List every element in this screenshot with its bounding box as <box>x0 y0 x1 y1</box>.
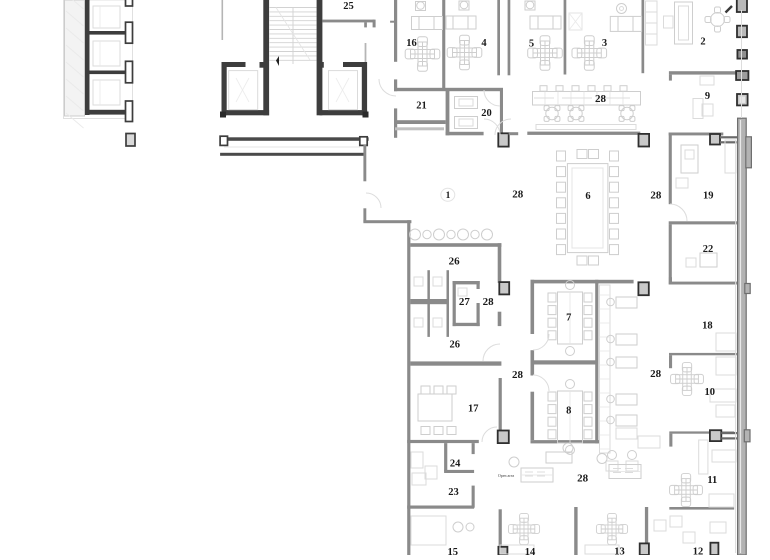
svg-text:13: 13 <box>614 547 625 556</box>
svg-text:21: 21 <box>416 101 427 112</box>
svg-text:6: 6 <box>585 191 590 202</box>
svg-text:8: 8 <box>566 405 571 416</box>
svg-text:19: 19 <box>703 190 714 201</box>
svg-text:28: 28 <box>577 473 589 485</box>
svg-text:16: 16 <box>406 38 417 49</box>
svg-text:28: 28 <box>483 296 495 308</box>
svg-text:28: 28 <box>512 369 524 381</box>
svg-text:20: 20 <box>481 108 492 119</box>
svg-text:27: 27 <box>459 296 471 308</box>
svg-text:23: 23 <box>448 487 459 498</box>
svg-text:1: 1 <box>446 191 451 201</box>
svg-text:28: 28 <box>595 93 607 105</box>
svg-text:24: 24 <box>450 459 461 470</box>
svg-text:28: 28 <box>650 189 662 201</box>
svg-text:11: 11 <box>707 475 717 486</box>
svg-text:26: 26 <box>450 340 461 351</box>
svg-text:14: 14 <box>525 547 536 555</box>
svg-text:7: 7 <box>566 312 571 323</box>
svg-text:28: 28 <box>650 368 662 380</box>
svg-text:26: 26 <box>449 256 461 268</box>
svg-text:2: 2 <box>700 37 705 48</box>
svg-text:9: 9 <box>705 91 710 102</box>
svg-text:18: 18 <box>702 320 713 331</box>
svg-text:Open area: Open area <box>498 473 515 478</box>
svg-text:10: 10 <box>704 387 715 398</box>
svg-text:15: 15 <box>447 547 458 555</box>
svg-text:5: 5 <box>529 39 534 50</box>
svg-text:22: 22 <box>703 244 714 255</box>
svg-text:17: 17 <box>468 403 479 414</box>
svg-text:25: 25 <box>343 1 354 12</box>
svg-text:4: 4 <box>481 38 487 49</box>
svg-text:3: 3 <box>602 38 607 49</box>
svg-text:12: 12 <box>693 547 704 556</box>
svg-text:28: 28 <box>512 189 524 201</box>
